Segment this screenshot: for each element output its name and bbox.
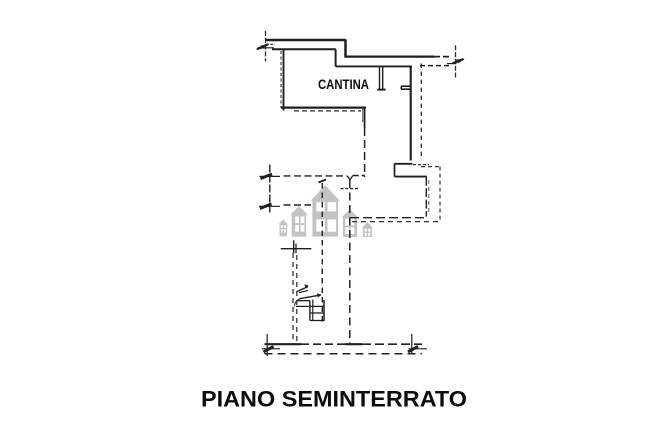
svg-text:PIANO SEMINTERRATO: PIANO SEMINTERRATO <box>201 387 467 412</box>
svg-text:CANTINA: CANTINA <box>318 77 369 93</box>
